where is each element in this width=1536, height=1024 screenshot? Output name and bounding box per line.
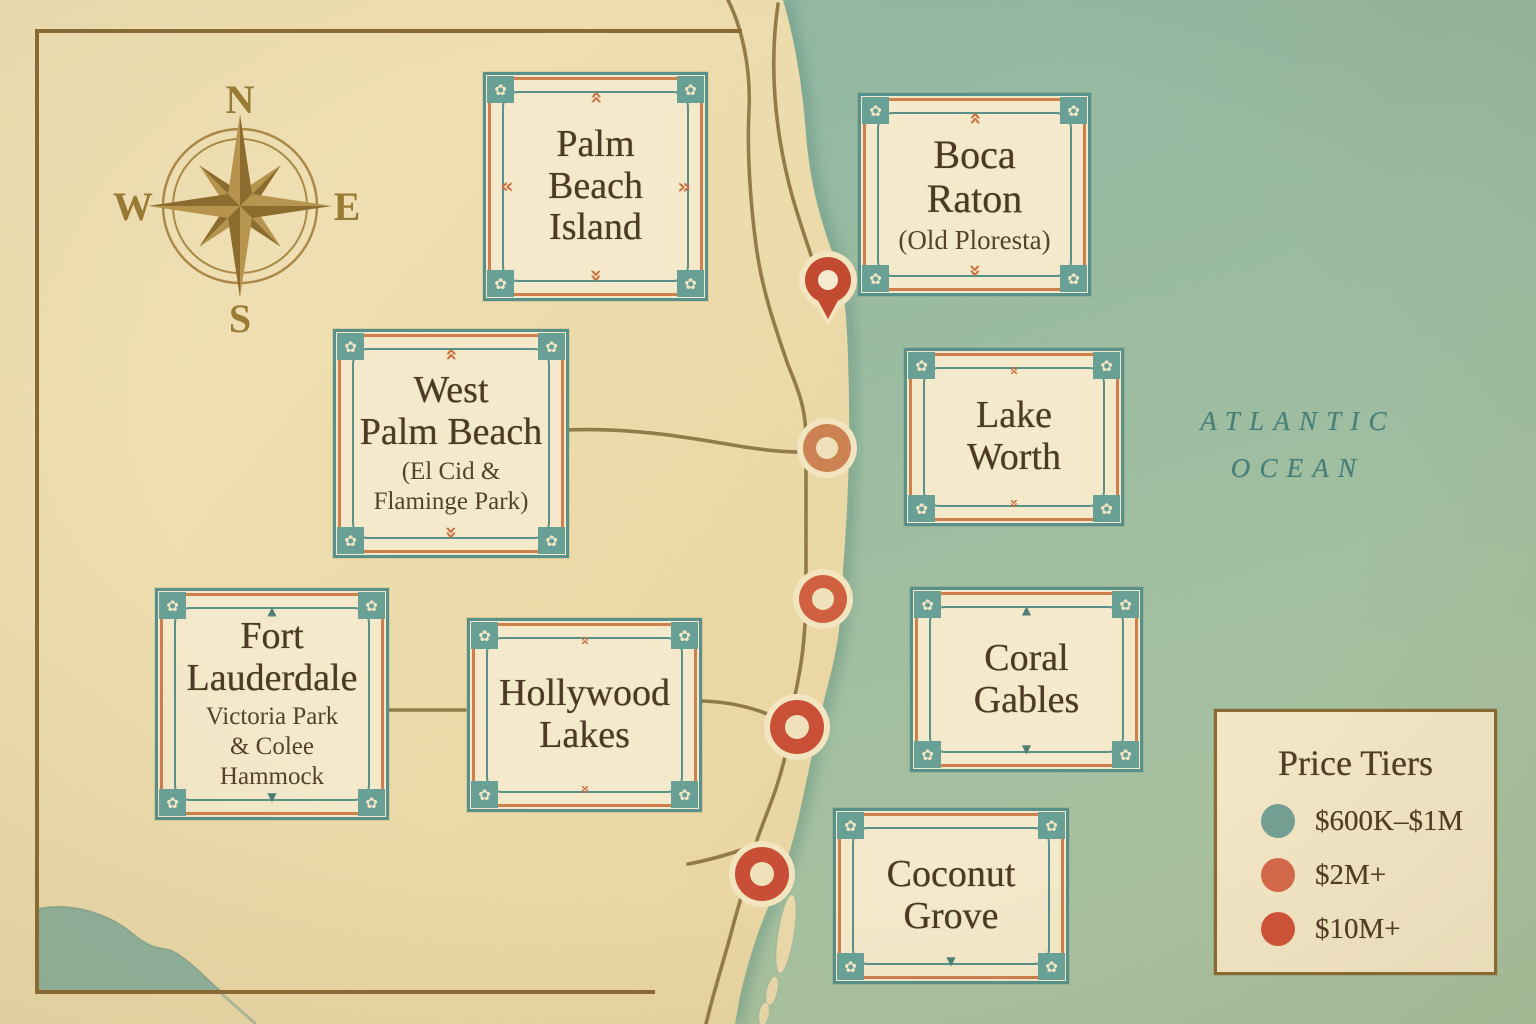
flower-ornament-icon: ✿ [1093,495,1120,522]
triangle-ornament-icon: ▲ [1022,604,1031,616]
triangle-ornament-icon: ▼ [946,955,955,967]
legend-row: $600K–$1M [1261,804,1494,838]
box-orange-border: Boca Raton (Old Ploresta) [863,98,1086,291]
region-title: Coconut Grove [887,854,1016,938]
flower-ornament-icon: ✿ [538,527,565,554]
chevron-ornament-icon: » [1007,366,1022,376]
triangle-ornament-icon: ▲ [267,605,276,617]
box-orange-border: Fort Lauderdale Victoria Park & Colee Ha… [160,593,384,815]
triangle-ornament-icon: ▼ [267,791,276,803]
region-box-coconut-grove: ✿ ✿ ✿ ✿ ▼ Coconut Grove [833,808,1069,984]
chevron-ornament-icon: » [500,176,514,197]
legend-label: $2M+ [1315,859,1386,892]
flower-ornament-icon: ✿ [471,622,498,649]
flower-ornament-icon: ✿ [1112,591,1139,618]
region-box-boca-raton: ✿ ✿ ✿ ✿ » » Boca Raton (Old Ploresta) [858,93,1091,296]
flower-ornament-icon: ✿ [671,622,698,649]
region-title: Fort Lauderdale [187,616,358,700]
chevron-ornament-icon: » [577,785,592,795]
atlantic-ocean-label: ATLANTIC OCEAN [1128,398,1468,493]
flower-ornament-icon: ✿ [159,789,186,816]
legend-row: $2M+ [1261,858,1494,892]
region-title: Hollywood Lakes [499,673,670,757]
tier-10m-swatch-icon [1261,912,1295,946]
chevron-ornament-icon: » [441,348,462,362]
flower-ornament-icon: ✿ [914,591,941,618]
box-orange-border: West Palm Beach (El Cid & Flaminge Park) [338,334,564,553]
region-title: West Palm Beach [360,370,543,454]
flower-ornament-icon: ✿ [471,781,498,808]
region-box-coral-gables: ✿ ✿ ✿ ✿ ▲ ▼ Coral Gables [910,587,1143,772]
tier-600k-1m-swatch-icon [1261,804,1295,838]
region-title: Boca Raton [927,133,1023,221]
region-title: Palm Beach Island [548,124,643,249]
flower-ornament-icon: ✿ [862,97,889,124]
region-title: Lake Worth [967,395,1061,479]
triangle-ornament-icon: ▼ [1022,743,1031,755]
region-box-fort-lauderdale: ✿ ✿ ✿ ✿ ▲ ▼ Fort Lauderdale Victoria Par… [155,588,389,820]
region-box-palm-beach-island: ✿ ✿ ✿ ✿ » » » » Palm Beach Island [483,72,708,301]
chevron-ornament-icon: » [1007,499,1022,509]
flower-ornament-icon: ✿ [1038,953,1065,980]
flower-ornament-icon: ✿ [358,789,385,816]
box-orange-border: Coral Gables [915,592,1138,767]
region-title: Coral Gables [974,638,1080,722]
flower-ornament-icon: ✿ [908,352,935,379]
flower-ornament-icon: ✿ [337,527,364,554]
flower-ornament-icon: ✿ [487,270,514,297]
chevron-ornament-icon: » [677,176,691,197]
legend-label: $600K–$1M [1315,805,1463,838]
flower-ornament-icon: ✿ [159,592,186,619]
flower-ornament-icon: ✿ [487,76,514,103]
box-orange-border: Lake Worth [909,353,1119,521]
box-orange-border: Palm Beach Island [488,77,703,296]
tier-2m-swatch-icon [1261,858,1295,892]
flower-ornament-icon: ✿ [538,333,565,360]
box-orange-border: Hollywood Lakes [472,623,697,807]
legend-row: $10M+ [1261,912,1494,946]
chevron-ornament-icon: » [964,112,985,126]
flower-ornament-icon: ✿ [908,495,935,522]
flower-ornament-icon: ✿ [358,592,385,619]
flower-ornament-icon: ✿ [1038,812,1065,839]
flower-ornament-icon: ✿ [914,741,941,768]
vintage-neighborhood-map: N E S W ✿ ✿ ✿ ✿ » » » » Palm Beach Islan… [0,0,1536,1024]
region-subtitle: (El Cid & Flaminge Park) [374,457,529,517]
legend-title: Price Tiers [1217,742,1494,784]
chevron-ornament-icon: » [964,264,985,278]
flower-ornament-icon: ✿ [671,781,698,808]
flower-ornament-icon: ✿ [837,953,864,980]
chevron-ornament-icon: » [441,526,462,540]
chevron-ornament-icon: » [585,91,606,105]
flower-ornament-icon: ✿ [1112,741,1139,768]
region-box-hollywood-lakes: ✿ ✿ ✿ ✿ » » Hollywood Lakes [467,618,702,812]
flower-ornament-icon: ✿ [337,333,364,360]
region-box-west-palm-beach: ✿ ✿ ✿ ✿ » » West Palm Beach (El Cid & Fl… [333,329,569,558]
chevron-ornament-icon: » [577,636,592,646]
flower-ornament-icon: ✿ [677,270,704,297]
flower-ornament-icon: ✿ [862,265,889,292]
region-box-lake-worth: ✿ ✿ ✿ ✿ » » Lake Worth [904,348,1124,526]
price-tiers-legend: Price Tiers $600K–$1M $2M+ $10M+ [1214,709,1497,975]
region-subtitle: (Old Ploresta) [898,224,1050,256]
chevron-ornament-icon: » [585,269,606,283]
flower-ornament-icon: ✿ [1060,97,1087,124]
flower-ornament-icon: ✿ [837,812,864,839]
flower-ornament-icon: ✿ [1093,352,1120,379]
flower-ornament-icon: ✿ [1060,265,1087,292]
flower-ornament-icon: ✿ [677,76,704,103]
legend-label: $10M+ [1315,913,1401,946]
region-subtitle: Victoria Park & Colee Hammock [180,702,364,792]
